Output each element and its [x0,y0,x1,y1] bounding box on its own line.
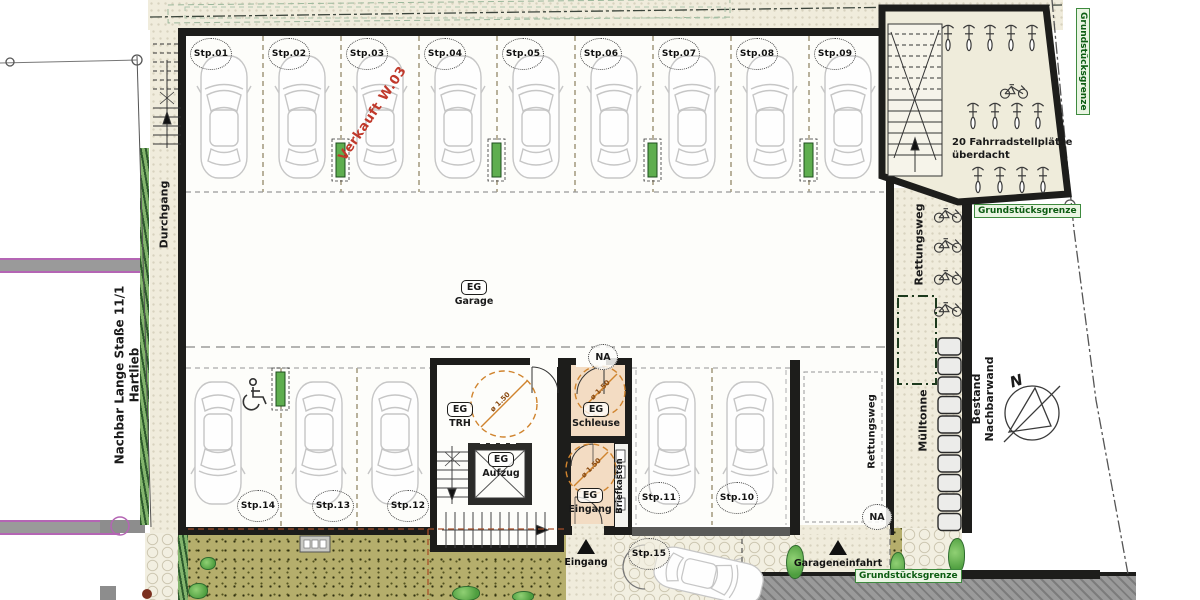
room-name: TRH [449,418,471,429]
path-bikes [935,209,962,317]
spot-label-stp09: Stp.09 [814,38,856,70]
spot-label-stp07: Stp.07 [658,38,700,70]
eg-box: EG [461,280,487,295]
wheelchair-icon [243,379,266,410]
spot-label-stp11: Stp.11 [638,482,680,514]
room-tag-aufzug: EG Aufzug [478,452,524,479]
utility-box [300,536,330,552]
bike-note-line1: 20 Fahrradstellplätze [952,136,1072,149]
spot-label-stp01: Stp.01 [190,38,232,70]
waste-bins [938,338,961,531]
muelltonne-zone [898,296,936,384]
garageneinfahrt-label: Garageneinfahrt [788,558,888,569]
room-name: Aufzug [482,468,519,479]
site-plan: Stp.01 Stp.02 Stp.03 Stp.04 Stp.05 Stp.0… [0,0,1200,600]
spot-label-stp04: Stp.04 [424,38,466,70]
neighbor-label: Nachbar Lange Staße 11/1 Hartlieb [113,268,143,483]
spot-label-stp03: Stp.03 [346,38,388,70]
room-name: Schleuse [572,418,620,429]
parking-separators-bottom [186,368,882,600]
marker-purple [111,517,129,535]
bike-shelter-stair [888,24,942,176]
spot-label-stp06: Stp.06 [580,38,622,70]
rettungsweg-inner-label: Rettungsweg [867,390,878,474]
bush [188,583,208,599]
eg-box: EG [577,488,603,503]
durchgang-stair [153,44,181,148]
einfahrt-arrow [829,540,847,555]
pillar-markers [272,139,817,410]
bush [452,586,480,600]
boundary-label-bottom: Grundstücksgrenze [855,569,962,583]
room-tag-garage: EG Garage [450,280,498,307]
na-marker-bottom: NA [862,504,892,530]
room-tag-trh: EG TRH [440,402,480,429]
spot-label-stp13: Stp.13 [312,490,354,522]
neighbor-line1: Nachbar Lange Staße 11/1 [113,268,128,483]
eg-box: EG [488,452,514,467]
north-arrow [1004,386,1060,442]
neighbor-line2: Hartlieb [128,268,143,483]
bush [512,591,534,600]
garden-boundary [188,529,890,600]
eg-box: EG [447,402,473,417]
boundary-label-right: Grundstücksgrenze [974,204,1081,218]
room-name: Garage [455,296,494,307]
briefkasten-label: Briefkasten [615,443,625,529]
eingang-outside-label: Eingang [556,557,616,568]
boundary-label-right-vertical: Grundstücksgrenze [1076,8,1090,115]
room-tag-schleuse: EG Schleuse [568,402,624,429]
rettungsweg-label: Rettungsweg [913,202,926,288]
bestand-label: Bestand Nachbarwand [970,334,996,464]
muelltonne-label: Mülltonne [917,386,930,456]
room-tag-eingang: EG Eingang [564,488,616,515]
spot-label-stp02: Stp.02 [268,38,310,70]
na-marker-top: NA [588,344,618,370]
room-name: Eingang [568,504,611,515]
bike-shelter-note: 20 Fahrradstellplätze überdacht [952,136,1072,162]
spot-label-stp15: Stp.15 [628,538,670,570]
durchgang-label: Durchgang [158,179,171,251]
spot-label-stp05: Stp.05 [502,38,544,70]
eingang-arrow [577,539,595,554]
bush [200,557,216,570]
spot-label-stp08: Stp.08 [736,38,778,70]
cars-top-row [197,56,875,178]
spot-label-stp12: Stp.12 [387,490,429,522]
spot-label-stp10: Stp.10 [716,482,758,514]
eg-box: EG [583,402,609,417]
marker-brown [142,589,152,599]
spot-label-stp14: Stp.14 [237,490,279,522]
bike-note-line2: überdacht [952,149,1072,162]
